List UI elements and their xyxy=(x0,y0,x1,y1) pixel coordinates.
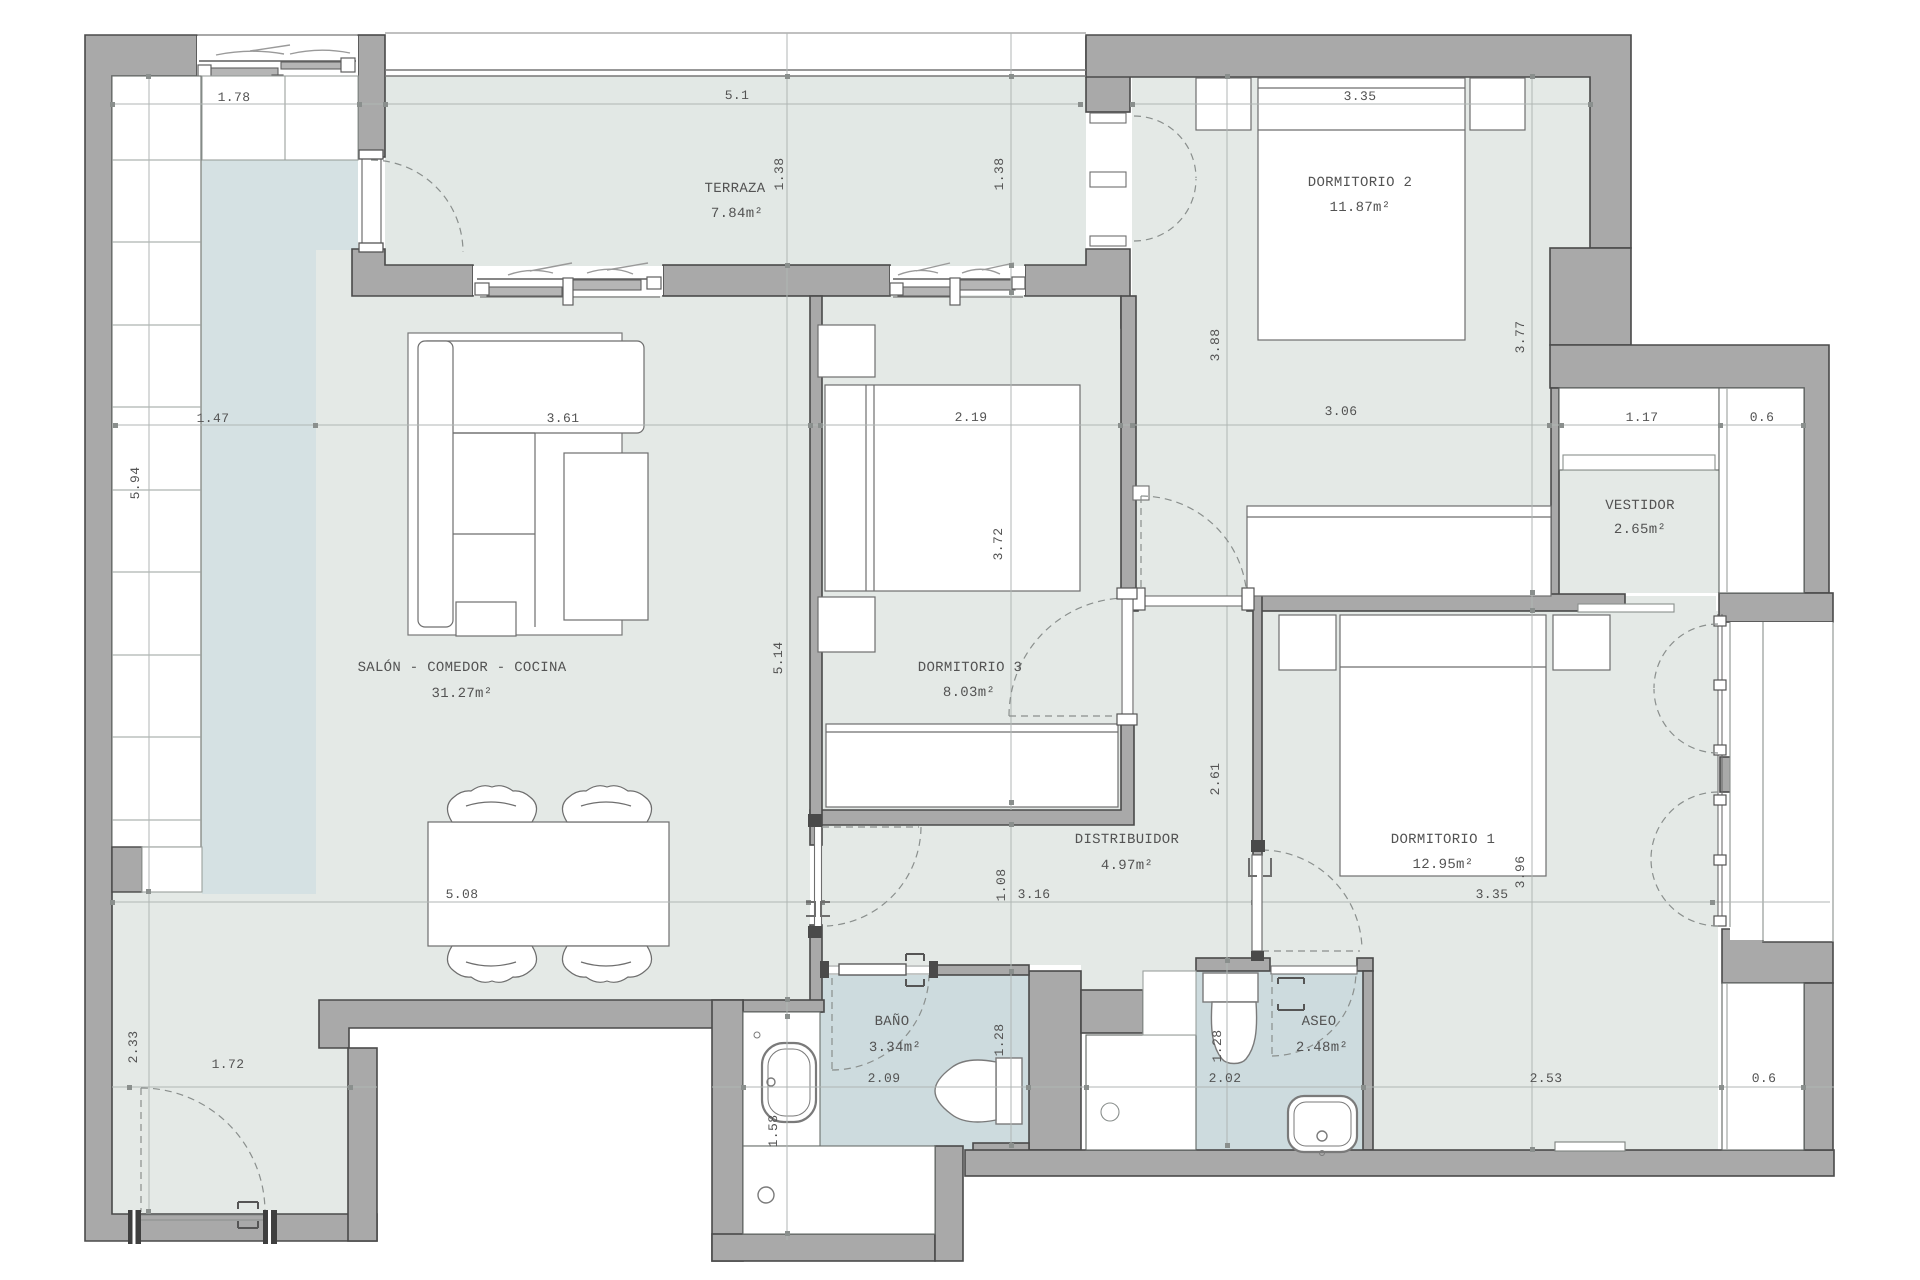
svg-text:1.38: 1.38 xyxy=(992,158,1007,191)
svg-text:SALÓN - COMEDOR - COCINA: SALÓN - COMEDOR - COCINA xyxy=(358,659,567,676)
svg-text:5.1: 5.1 xyxy=(725,88,750,103)
svg-text:2.09: 2.09 xyxy=(868,1071,901,1086)
svg-text:BAÑO: BAÑO xyxy=(875,1013,910,1030)
svg-text:3.34m²: 3.34m² xyxy=(869,1040,921,1056)
svg-text:3.16: 3.16 xyxy=(1018,887,1051,902)
svg-text:ASEO: ASEO xyxy=(1302,1014,1337,1030)
svg-text:1.72: 1.72 xyxy=(212,1057,245,1072)
svg-text:2.19: 2.19 xyxy=(955,410,988,425)
svg-text:0.6: 0.6 xyxy=(1750,410,1775,425)
svg-text:2.02: 2.02 xyxy=(1209,1071,1242,1086)
svg-text:8.03m²: 8.03m² xyxy=(943,685,995,701)
svg-text:5.94: 5.94 xyxy=(128,467,143,500)
svg-text:2.53: 2.53 xyxy=(1530,1071,1563,1086)
svg-text:DISTRIBUIDOR: DISTRIBUIDOR xyxy=(1075,832,1180,848)
svg-text:2.65m²: 2.65m² xyxy=(1614,522,1666,538)
svg-text:1.38: 1.38 xyxy=(772,158,787,191)
svg-text:3.72: 3.72 xyxy=(991,528,1006,561)
svg-text:1.28: 1.28 xyxy=(992,1024,1007,1057)
svg-text:0.6: 0.6 xyxy=(1752,1071,1777,1086)
svg-text:DORMITORIO 2: DORMITORIO 2 xyxy=(1308,175,1412,191)
svg-text:1.58: 1.58 xyxy=(766,1115,781,1148)
svg-text:TERRAZA: TERRAZA xyxy=(705,181,766,197)
svg-text:11.87m²: 11.87m² xyxy=(1330,200,1391,216)
svg-text:7.84m²: 7.84m² xyxy=(711,206,763,222)
svg-text:3.77: 3.77 xyxy=(1513,321,1528,354)
svg-text:VESTIDOR: VESTIDOR xyxy=(1605,498,1675,514)
svg-text:3.35: 3.35 xyxy=(1476,887,1509,902)
svg-text:1.17: 1.17 xyxy=(1626,410,1659,425)
svg-text:1.47: 1.47 xyxy=(197,411,230,426)
svg-text:DORMITORIO 3: DORMITORIO 3 xyxy=(918,660,1022,676)
svg-text:3.88: 3.88 xyxy=(1208,329,1223,362)
svg-text:3.96: 3.96 xyxy=(1513,856,1528,889)
svg-text:31.27m²: 31.27m² xyxy=(432,686,493,702)
svg-text:2.33: 2.33 xyxy=(126,1031,141,1064)
svg-text:4.97m²: 4.97m² xyxy=(1101,858,1153,874)
svg-text:1.78: 1.78 xyxy=(218,90,251,105)
svg-text:12.95m²: 12.95m² xyxy=(1413,857,1474,873)
svg-text:5.08: 5.08 xyxy=(446,887,479,902)
svg-text:3.61: 3.61 xyxy=(547,411,580,426)
svg-text:2.61: 2.61 xyxy=(1208,763,1223,796)
svg-text:1.28: 1.28 xyxy=(1210,1030,1225,1063)
svg-text:DORMITORIO 1: DORMITORIO 1 xyxy=(1391,832,1495,848)
svg-text:5.14: 5.14 xyxy=(771,642,786,675)
svg-text:2.48m²: 2.48m² xyxy=(1296,1040,1348,1056)
svg-text:3.06: 3.06 xyxy=(1325,404,1358,419)
svg-text:1.08: 1.08 xyxy=(994,869,1009,902)
svg-text:3.35: 3.35 xyxy=(1344,89,1377,104)
